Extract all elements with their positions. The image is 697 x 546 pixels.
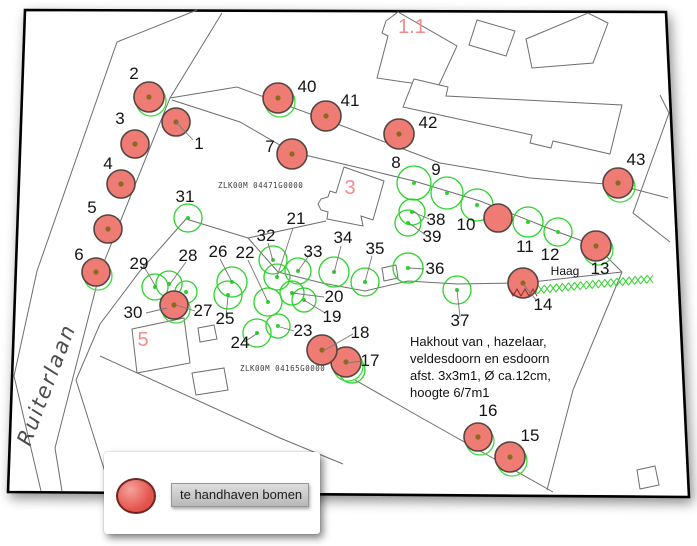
tree-number-30: 30	[124, 303, 143, 322]
building-outline	[637, 466, 659, 489]
tree-number-21: 21	[287, 209, 306, 228]
tree-red-15-center	[507, 454, 512, 459]
tree-red-40-center	[275, 95, 280, 100]
tree-green-8-center	[412, 181, 416, 185]
tree-number-23: 23	[294, 321, 313, 340]
tree-red-10	[484, 204, 512, 232]
tree-number-10: 10	[457, 215, 476, 234]
tree-number-3: 3	[115, 109, 124, 128]
building-outline	[198, 325, 217, 342]
tree-number-19: 19	[323, 307, 342, 326]
tree-number-25: 25	[216, 309, 235, 328]
parcel-code-2: ZLK00M 04165G0000	[240, 364, 325, 373]
legend-tree-swatch-icon	[116, 478, 156, 514]
tree-number-12: 12	[541, 245, 560, 264]
tree-green-9-center	[445, 191, 449, 195]
tree-red-18-center	[319, 347, 324, 352]
tree-number-33: 33	[304, 242, 323, 261]
tree-red-43-center	[615, 180, 620, 185]
tree-red-14-center	[520, 280, 525, 285]
tree-red-3-center	[132, 141, 137, 146]
tree-green-11-center	[526, 220, 530, 224]
tree-number-34: 34	[334, 228, 353, 247]
tree-number-15: 15	[521, 426, 540, 445]
tree-number-4: 4	[103, 154, 112, 173]
building-ref-1.1: 1.1	[398, 16, 426, 38]
tree-number-42: 42	[419, 113, 438, 132]
tree-red-16-center	[475, 434, 480, 439]
tree-number-37: 37	[451, 311, 470, 330]
tree-red-4-center	[118, 181, 123, 186]
tree-number-7: 7	[265, 137, 274, 156]
tree-number-14: 14	[534, 295, 553, 314]
tree-red-41-center	[323, 113, 328, 118]
tree-red-5-center	[105, 226, 110, 231]
hakhout-note-line: Hakhout van , hazelaar,	[410, 334, 547, 349]
legend: te handhaven bomen	[104, 452, 320, 534]
tree-green-12-center	[556, 230, 560, 234]
tree-red-2-center	[146, 94, 151, 99]
tree-red-13-center	[593, 243, 598, 248]
tree-number-5: 5	[87, 198, 96, 217]
tree-number-28: 28	[179, 246, 198, 265]
tree-number-1: 1	[194, 134, 203, 153]
tree-number-17: 17	[361, 351, 380, 370]
tree-number-22: 22	[236, 243, 255, 262]
tree-number-36: 36	[426, 259, 445, 278]
tree-number-26: 26	[209, 242, 228, 261]
hakhout-note-line: afst. 3x3m1, Ø ca.12cm,	[410, 368, 551, 383]
tree-number-18: 18	[351, 323, 370, 342]
hakhout-note-line: veldesdoorn en esdoorn	[410, 351, 550, 366]
tree-red-17-center	[343, 359, 348, 364]
building-outline	[382, 265, 398, 281]
scanned-tree-plan-sheet: 1234567891011121314151617181920212223242…	[0, 0, 697, 546]
tree-number-16: 16	[479, 401, 498, 420]
tree-number-8: 8	[391, 153, 400, 172]
tree-green-31-center	[186, 216, 190, 220]
tree-number-40: 40	[298, 77, 317, 96]
tree-number-41: 41	[341, 91, 360, 110]
haag-label: Haag	[551, 264, 580, 278]
building-ref-5: 5	[137, 329, 148, 351]
tree-green-23-center	[276, 324, 280, 328]
tree-number-6: 6	[74, 245, 83, 264]
tree-red-42-center	[396, 131, 401, 136]
tree-number-31: 31	[176, 187, 195, 206]
building-ref-3: 3	[344, 177, 355, 199]
tree-red-27-center	[171, 302, 176, 307]
tree-green-u2-center	[475, 203, 479, 207]
tree-number-20: 20	[325, 287, 344, 306]
tree-number-39: 39	[423, 227, 442, 246]
legend-label: te handhaven bomen	[171, 483, 309, 507]
tree-number-27: 27	[194, 301, 213, 320]
parcel-code-1: ZLK00M 04471G0000	[218, 181, 303, 190]
tree-red-7-center	[289, 151, 294, 156]
tree-green-u12-center	[184, 290, 188, 294]
tree-number-9: 9	[431, 160, 440, 179]
tree-red-6-center	[93, 269, 98, 274]
tree-number-32: 32	[257, 226, 276, 245]
hakhout-note-line: hoogte 6/7m1	[410, 385, 490, 400]
tree-number-43: 43	[627, 150, 646, 169]
tree-number-24: 24	[231, 333, 250, 352]
building-outline	[192, 368, 228, 395]
tree-number-35: 35	[366, 239, 385, 258]
tree-number-13: 13	[591, 259, 610, 278]
tree-number-11: 11	[516, 237, 534, 256]
tree-number-29: 29	[130, 254, 149, 273]
tree-number-2: 2	[129, 64, 138, 83]
